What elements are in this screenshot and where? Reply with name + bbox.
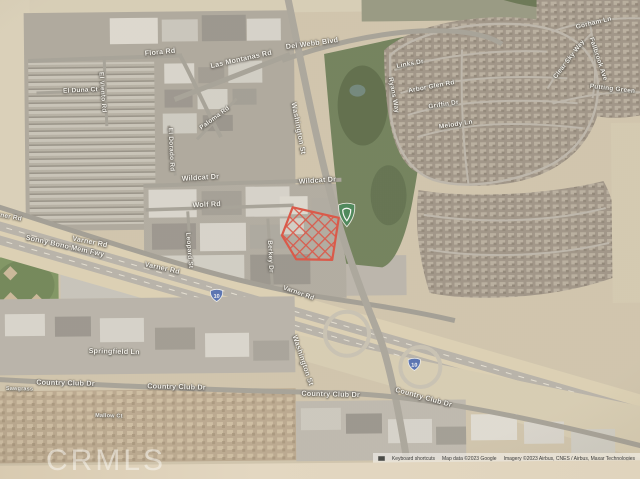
keyboard-shortcuts-link[interactable]: Keyboard shortcuts xyxy=(392,456,435,462)
svg-text:10: 10 xyxy=(214,294,220,300)
keyboard-icon[interactable] xyxy=(378,456,385,461)
satellite-imagery: 10 10 xyxy=(0,0,640,479)
crmls-watermark: CRMLS xyxy=(46,444,166,478)
svg-text:10: 10 xyxy=(411,363,417,369)
map-canvas[interactable]: 10 10 Flora RdLas Montanas RdDel Webb Bl… xyxy=(0,0,640,479)
screenshot-photo: 10 10 Flora RdLas Montanas RdDel Webb Bl… xyxy=(0,0,640,479)
